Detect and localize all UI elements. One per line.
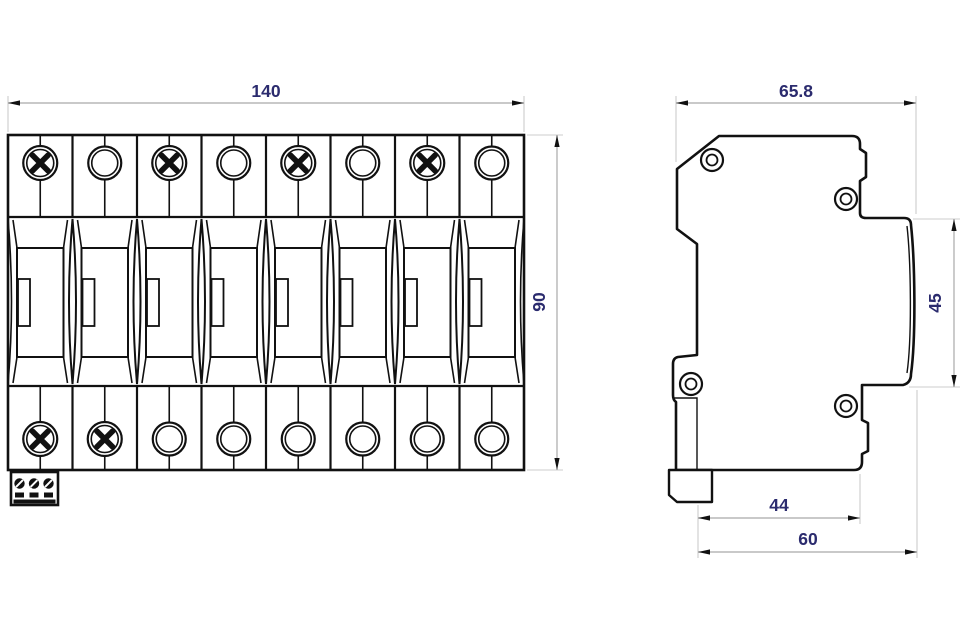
side-body-outline [673,136,914,470]
phillips-screw-icon [152,146,186,180]
block-screw-icon [29,478,39,488]
dim-front-height: 90 [527,135,563,470]
dim-label-65-8: 65.8 [779,81,813,101]
block-screw-icon [43,478,53,488]
side-view: 65.8 45 44 60 [669,80,960,558]
terminal-port-icon [475,147,508,180]
terminal-port-icon [217,423,250,456]
terminal-port-icon [217,147,250,180]
technical-drawing-canvas: 140 90 [0,0,960,640]
dim-label-44: 44 [769,495,789,515]
block-screw-icon [14,478,24,488]
phillips-screw-icon [23,422,57,456]
terminal-port-icon [411,423,444,456]
aux-terminal-block-side [669,470,712,502]
phillips-screw-icon [88,422,122,456]
dim-side-44: 44 [698,474,860,558]
dim-front-width: 140 [8,80,524,132]
phillips-screw-icon [281,146,315,180]
dim-side-45: 45 [909,219,960,387]
terminal-port-icon [346,147,379,180]
front-view: 140 90 [8,80,563,505]
phillips-screw-icon [410,146,444,180]
dim-label-90: 90 [529,292,549,312]
dim-label-140: 140 [251,81,280,101]
phillips-screw-icon [23,146,57,180]
terminal-port-icon [475,423,508,456]
terminal-port-icon [88,147,121,180]
terminal-port-icon [346,423,379,456]
dimension-drawing: 140 90 [0,0,960,640]
terminal-port-icon [153,423,186,456]
terminal-port-icon [282,423,315,456]
dim-label-60: 60 [798,529,818,549]
dim-label-45: 45 [925,293,945,313]
aux-terminal-block-front [11,472,58,505]
